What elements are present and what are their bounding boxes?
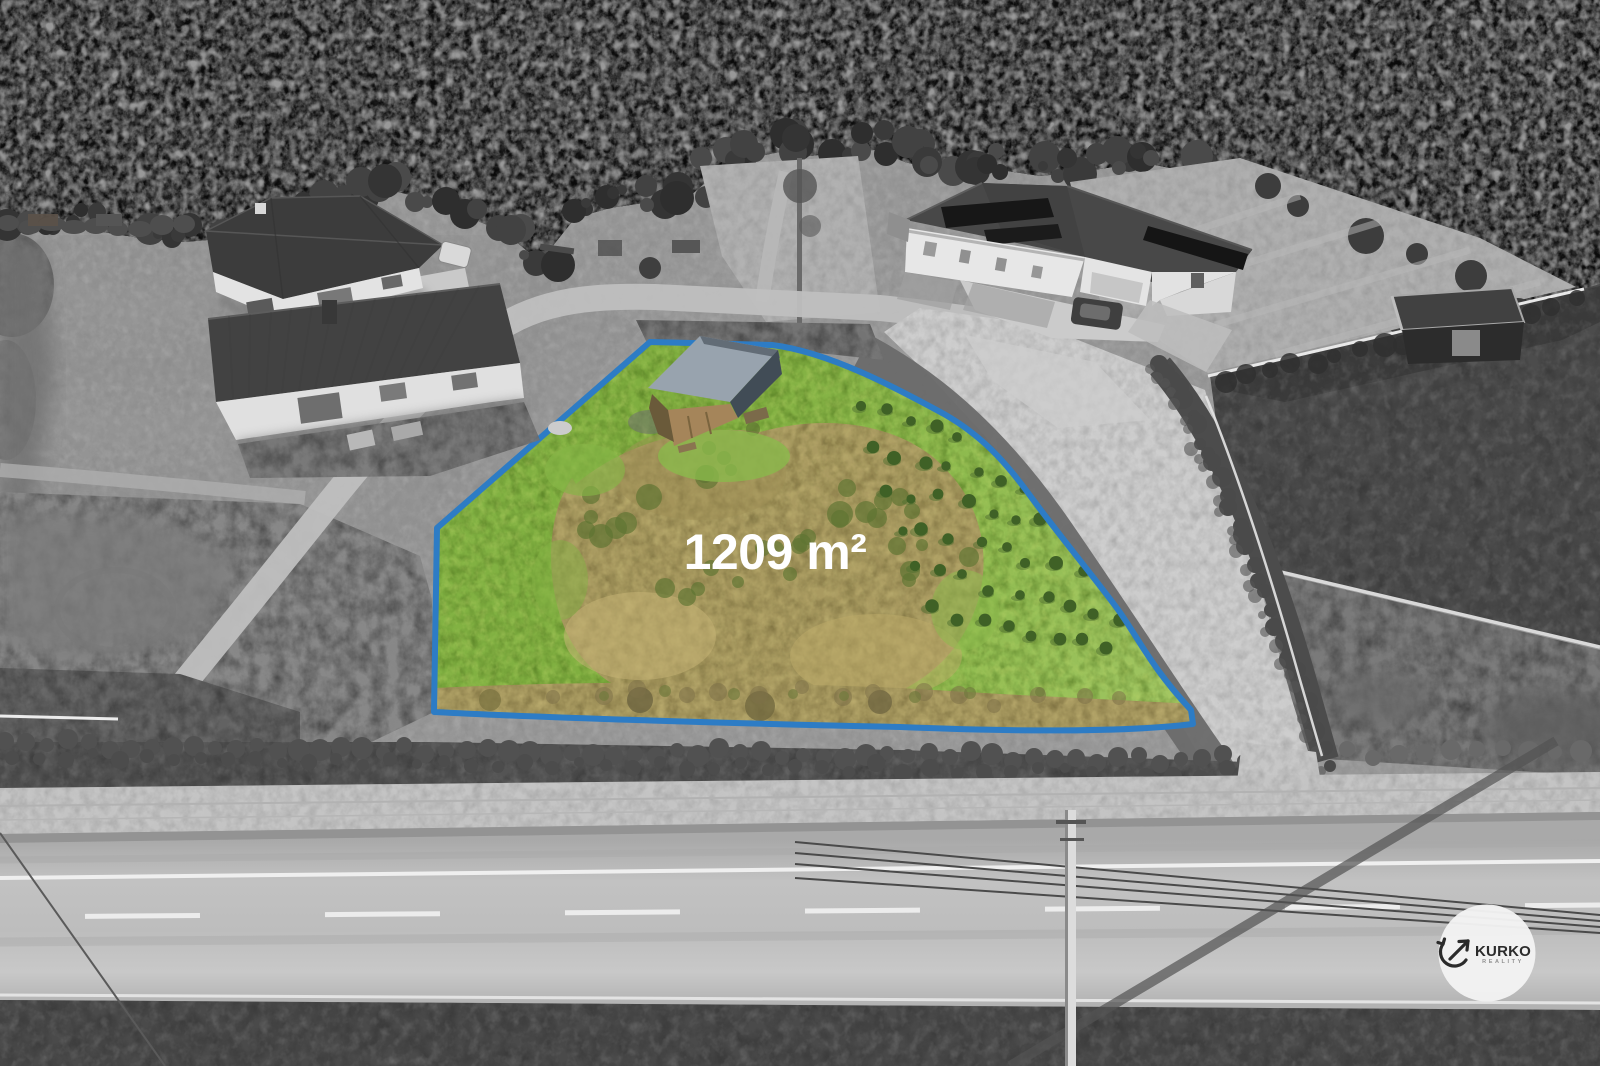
svg-text:REALITY: REALITY xyxy=(1482,959,1524,965)
svg-text:1209 m²: 1209 m² xyxy=(684,524,867,580)
svg-text:KURKO: KURKO xyxy=(1475,943,1531,960)
